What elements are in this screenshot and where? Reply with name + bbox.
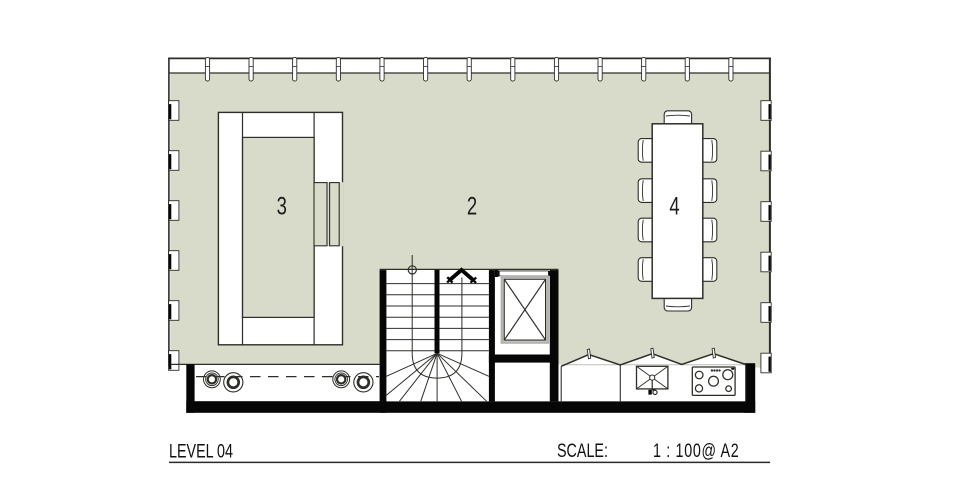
- svg-text:3: 3: [277, 192, 287, 220]
- svg-text:2: 2: [467, 192, 477, 220]
- svg-text:LEVEL 04: LEVEL 04: [169, 440, 233, 462]
- svg-text:1 : 100@ A2: 1 : 100@ A2: [653, 440, 739, 462]
- svg-text:SCALE:: SCALE:: [557, 440, 608, 462]
- svg-text:4: 4: [669, 192, 679, 220]
